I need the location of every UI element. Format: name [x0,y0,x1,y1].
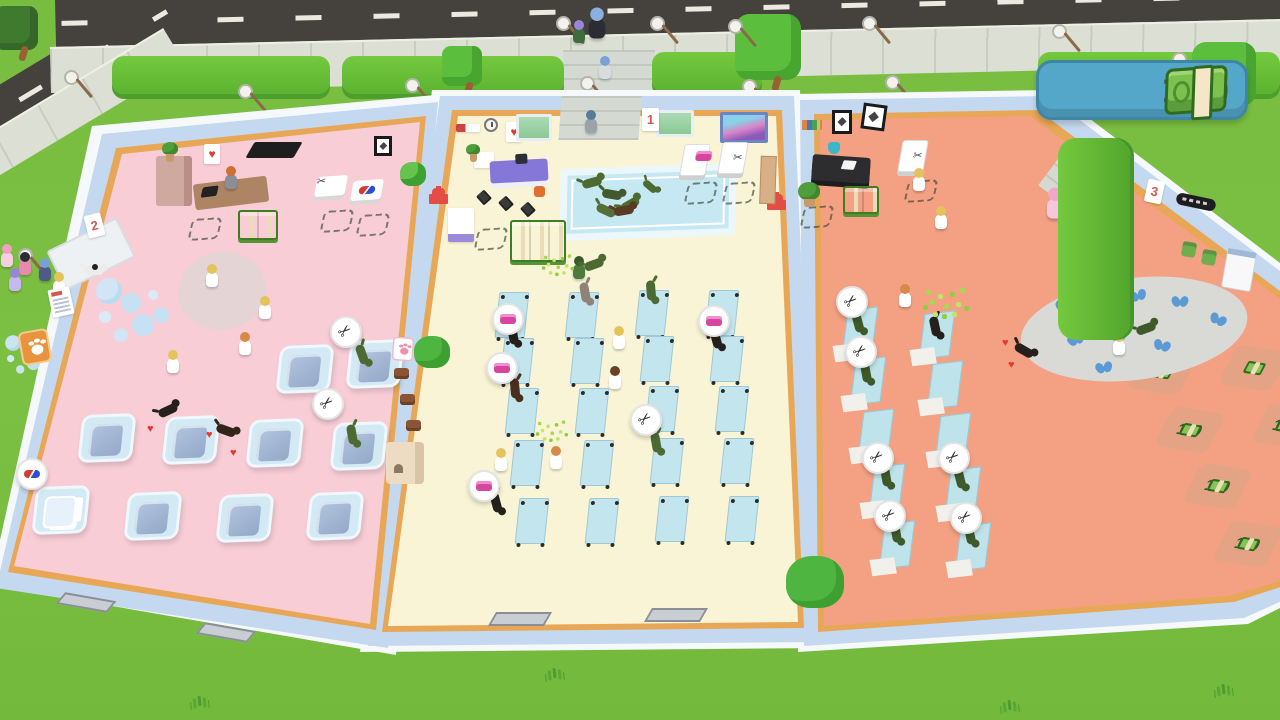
grass-tuft [552,668,556,678]
tree [442,46,482,86]
wall-frame [860,102,887,131]
wall-window [644,608,708,622]
room-number-label: 3 [1149,183,1159,199]
bath-tub[interactable] [123,491,182,541]
nurse-character [934,206,948,232]
money-pile[interactable] [510,220,566,262]
bush [786,556,844,608]
street-lamp [728,19,762,55]
scissors-icon: ✂ [944,448,965,469]
scissors-icon: ✂ [730,143,745,173]
soap-icon [695,151,713,161]
room-number-sign: 1 [642,108,659,131]
nurse-character [205,264,219,290]
customer-character [598,56,612,82]
scissors-icon: ✂ [336,322,357,343]
pet-bed[interactable] [580,440,615,486]
task-bubble-soap [486,352,518,384]
soap-icon [476,481,492,491]
task-bubble-pill [16,458,48,490]
soap-icon [494,363,510,373]
grass-tuft [1007,700,1011,710]
wall-blackboard [245,142,302,158]
game-scene: 2 ♥ ✂ ✂ ✂ ♥ ♥ ♥ ♥ [0,0,1280,720]
customer-character [0,244,14,270]
nurse-character [912,168,926,194]
nurse-character [258,296,272,322]
wall-shelf [759,156,777,205]
scissors-icon: ✂ [880,506,901,527]
street-lamp [650,16,684,52]
soap-icon [500,314,516,324]
bath-tub[interactable] [77,413,136,463]
wall-frame [374,136,392,156]
soap-icon [706,316,722,326]
heart-icon: ♥ [1008,360,1015,371]
bath-tub[interactable] [215,493,274,543]
heart-icon: ♥ [208,148,215,160]
paw-print-sign [17,328,52,367]
task-bubble-scissors: ✂ [330,316,362,348]
street-lamp [1052,24,1086,60]
bath-tub[interactable] [245,418,304,468]
paw-print-sign [392,336,415,361]
customer-character [588,7,607,42]
pet-bed[interactable] [575,388,610,434]
bath-tub[interactable] [305,491,364,541]
bush [414,336,450,368]
receptionist-character [224,166,238,192]
bath-tub[interactable] [31,485,90,535]
reception-desk[interactable] [489,158,548,183]
pet-cat [646,280,657,301]
plant [466,144,480,155]
task-bubble-scissors: ✂ [312,388,344,420]
task-bubble-scissors: ✂ [836,286,868,318]
task-bubble-scissors: ✂ [938,442,970,474]
sparkle-particles [547,263,551,267]
scissors-icon: ✂ [636,410,657,431]
plant [162,142,178,155]
task-bubble-scissors: ✂ [950,502,982,534]
grass-tuft [197,696,201,706]
heart-icon: ♥ [206,430,213,441]
notice-strip [456,124,480,132]
task-bubble-soap [468,470,500,502]
pet-bed[interactable] [510,440,545,486]
heart-poster: ♥ [204,144,220,164]
wall-painting [720,112,768,143]
pet-bed[interactable] [585,498,620,544]
wall-window [516,114,552,141]
wall-clock [484,118,498,132]
nurse-character [608,366,622,392]
plant [798,182,820,200]
soap-bubbles [96,278,122,304]
nurse-character [166,350,180,376]
money-pile[interactable] [238,210,278,240]
bath-tub[interactable] [275,344,334,394]
supply-table[interactable]: ✂ [314,175,348,197]
pet-spot [92,264,98,270]
wall-window [488,612,552,626]
pet-cat [510,378,521,399]
nurse-character [612,326,626,352]
cash-icon [1242,361,1266,376]
tree [0,6,38,50]
waiting-chair [1181,241,1197,258]
scissors-icon: ✂ [318,394,339,415]
customer-character [584,110,598,136]
nurse-character [494,448,508,474]
task-bubble-soap [492,303,524,335]
fire-hydrant [432,188,445,204]
wall-books [802,120,822,130]
heart-icon: ♥ [147,424,154,435]
confetti-burst [930,300,935,305]
task-bubble-scissors: ✂ [874,500,906,532]
supply-table[interactable] [350,179,384,201]
pet-bed[interactable] [570,338,605,384]
pet-bed[interactable] [725,496,760,542]
scissors-icon: ✂ [842,292,863,313]
desk-chair [828,142,840,154]
task-bubble-scissors: ✂ [845,336,877,368]
room-number-label: 1 [647,112,654,127]
cabinet [156,156,192,206]
grass-tuft [1221,684,1225,694]
bush [400,162,426,186]
waiting-chair [394,368,409,379]
money-pile[interactable] [843,186,879,214]
customer-character [8,268,22,294]
task-bubble-scissors: ✂ [862,442,894,474]
grooming-table[interactable] [927,360,963,409]
entry-mat [558,96,641,140]
pet-bed[interactable] [715,386,750,432]
scissors-icon: ✂ [851,342,872,363]
office-desk[interactable] [811,154,871,184]
scissors-icon: ✂ [956,508,977,529]
waiting-chair [400,394,415,405]
waiting-chair [1201,249,1217,266]
heart-icon: ♥ [1002,338,1009,349]
scissors-icon: ✂ [868,448,889,469]
pet-bed[interactable] [655,496,690,542]
butterfly-icon [1172,296,1188,308]
customer-character [38,258,52,284]
money-counter: 160 [1036,60,1248,120]
nurse-character [898,284,912,310]
groomer-character [572,256,586,282]
hedge [1058,138,1130,340]
customer-character [572,20,586,46]
nurse-character [549,446,563,472]
wall-window [656,110,694,137]
wall-frame [832,110,852,134]
pet-bed[interactable] [515,498,550,544]
pet-bed[interactable] [720,438,755,484]
nurse-character [238,332,252,358]
heart-icon: ♥ [230,448,237,459]
cash-stack-icon [1164,65,1227,116]
cabinet [448,208,474,242]
task-bubble-soap [698,305,730,337]
street-lamp [64,70,98,106]
pet-house [386,442,424,484]
sparkle-particles [541,429,545,433]
pill-icon [24,470,40,478]
scissors-icon: ✂ [910,141,925,171]
pet-bed[interactable] [640,336,675,382]
waiting-chair [406,420,421,431]
stool [534,186,545,197]
room-number-label: 2 [89,217,100,233]
scissors-icon: ✂ [316,176,327,188]
street-lamp [862,16,896,52]
task-bubble-scissors: ✂ [630,404,662,436]
pill-icon [358,185,376,194]
hedge [112,56,330,94]
